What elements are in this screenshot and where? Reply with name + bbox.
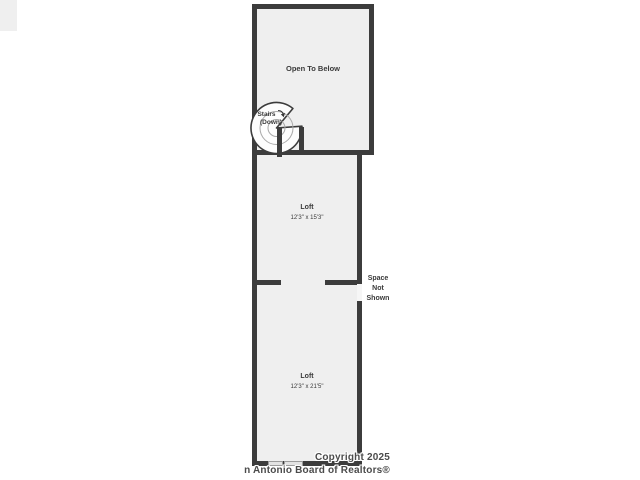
open-to-below-text: Open To Below xyxy=(286,64,340,73)
copyright-notice: Copyright 2025 n Antonio Board of Realto… xyxy=(190,451,390,477)
stair-shaft xyxy=(0,0,17,31)
copyright-line-1: Copyright 2025 xyxy=(190,451,390,464)
space-not-shown-line: Shown xyxy=(358,294,398,304)
loft-upper-label: Loft 12'3" x 15'3" xyxy=(252,203,362,223)
open-to-below-label: Open To Below xyxy=(252,64,374,73)
space-not-shown-label: Space Not Shown xyxy=(358,274,398,304)
loft-lower-label: Loft 12'3" x 21'5" xyxy=(252,372,362,392)
wall-opening-between-lofts xyxy=(281,280,325,285)
stair-shaft-wall-right xyxy=(299,127,304,155)
stairs-down-text: (Down) xyxy=(260,119,282,126)
room-name: Loft xyxy=(252,203,362,212)
copyright-line-2: n Antonio Board of Realtors® xyxy=(190,464,390,477)
room-name: Loft xyxy=(252,372,362,381)
room-dimensions: 12'3" x 15'3" xyxy=(252,214,362,223)
stairs-label: Stairs (Down) xyxy=(250,107,292,127)
stairs-down-arrow-icon xyxy=(277,113,286,120)
stair-shaft-wall-left xyxy=(277,127,282,157)
room-dimensions: 12'3" x 21'5" xyxy=(252,383,362,392)
floor-plan: Open To Below Stairs (Down) Loft 12'3" x… xyxy=(0,0,640,480)
space-not-shown-line: Space xyxy=(358,274,398,284)
space-not-shown-line: Not xyxy=(358,284,398,294)
stairs-text: Stairs xyxy=(257,111,275,118)
